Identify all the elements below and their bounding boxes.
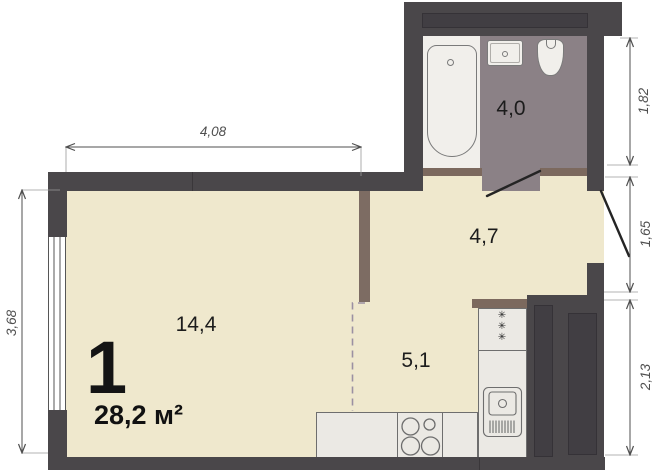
washbasin-drain [502,51,508,57]
gas-burner-icon: ✳ [493,322,511,333]
unit-total-area: 28,2 м² [94,401,183,431]
wall-bottom [48,457,605,470]
bathroom-threshold-left [423,168,482,176]
dimension-right-middle-label: 1,65 [638,200,654,268]
room-partition [359,191,370,302]
floor-plan: ✳ ✳ ✳ [0,0,654,470]
bathroom-threshold-right [540,168,587,176]
entrance-door-swing [601,191,629,256]
vent-shaft-2 [568,313,597,455]
wall-left-upper [48,172,67,237]
window [48,237,66,410]
living-room-area-label: 14,4 [156,312,236,337]
dimension-right-top-label: 1,82 [636,67,652,135]
dimension-left-label: 3,68 [4,289,20,357]
gas-burner-icon: ✳ [493,333,511,344]
vent-duct-top [422,13,588,28]
kitchen-lintel [472,299,527,308]
bathroom-area-label: 4,0 [471,96,551,121]
dimension-top-label: 4,08 [179,124,247,140]
bathtub-drain [447,59,454,66]
kitchen-area-label: 5,1 [376,348,456,373]
wall-bathroom-right [587,36,604,191]
gas-appliance-symbols: ✳ ✳ ✳ [493,311,511,343]
dimension-right-bottom-label: 2,13 [638,343,654,411]
hall-area-label: 4,7 [444,224,524,249]
entrance-recess-floor [587,191,604,263]
bathroom-door-gap [482,168,540,191]
vent-shaft-1 [534,305,553,457]
kitchen-counter-bottom [316,412,478,457]
wall-bathroom-left [404,2,423,191]
unit-rooms-count: 1 [86,331,127,405]
wall-top-main [48,172,423,191]
